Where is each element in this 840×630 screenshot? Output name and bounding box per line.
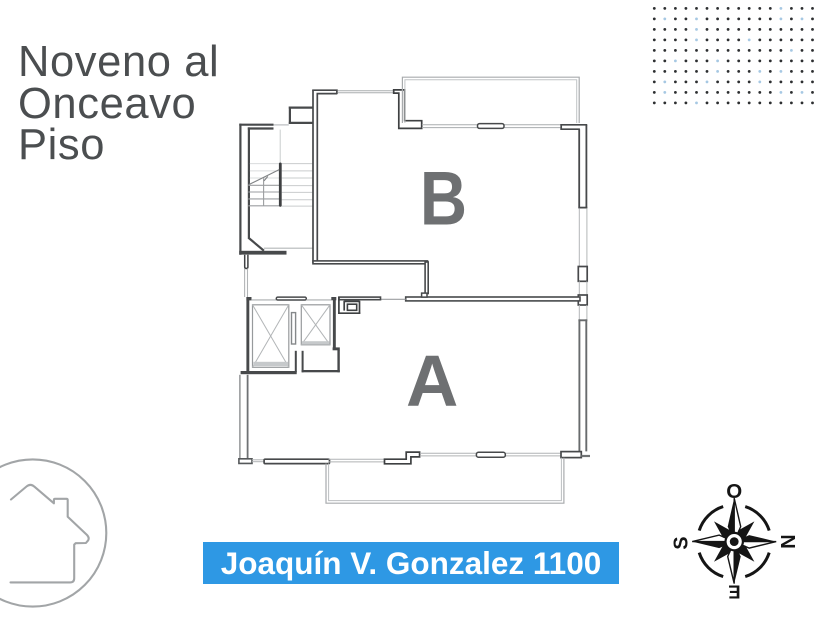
svg-text:A: A (406, 341, 458, 422)
svg-text:N: N (776, 534, 798, 548)
svg-text:B: B (420, 157, 467, 242)
svg-text:O: O (726, 480, 742, 503)
svg-text:S: S (670, 536, 692, 549)
svg-text:E: E (728, 582, 740, 603)
